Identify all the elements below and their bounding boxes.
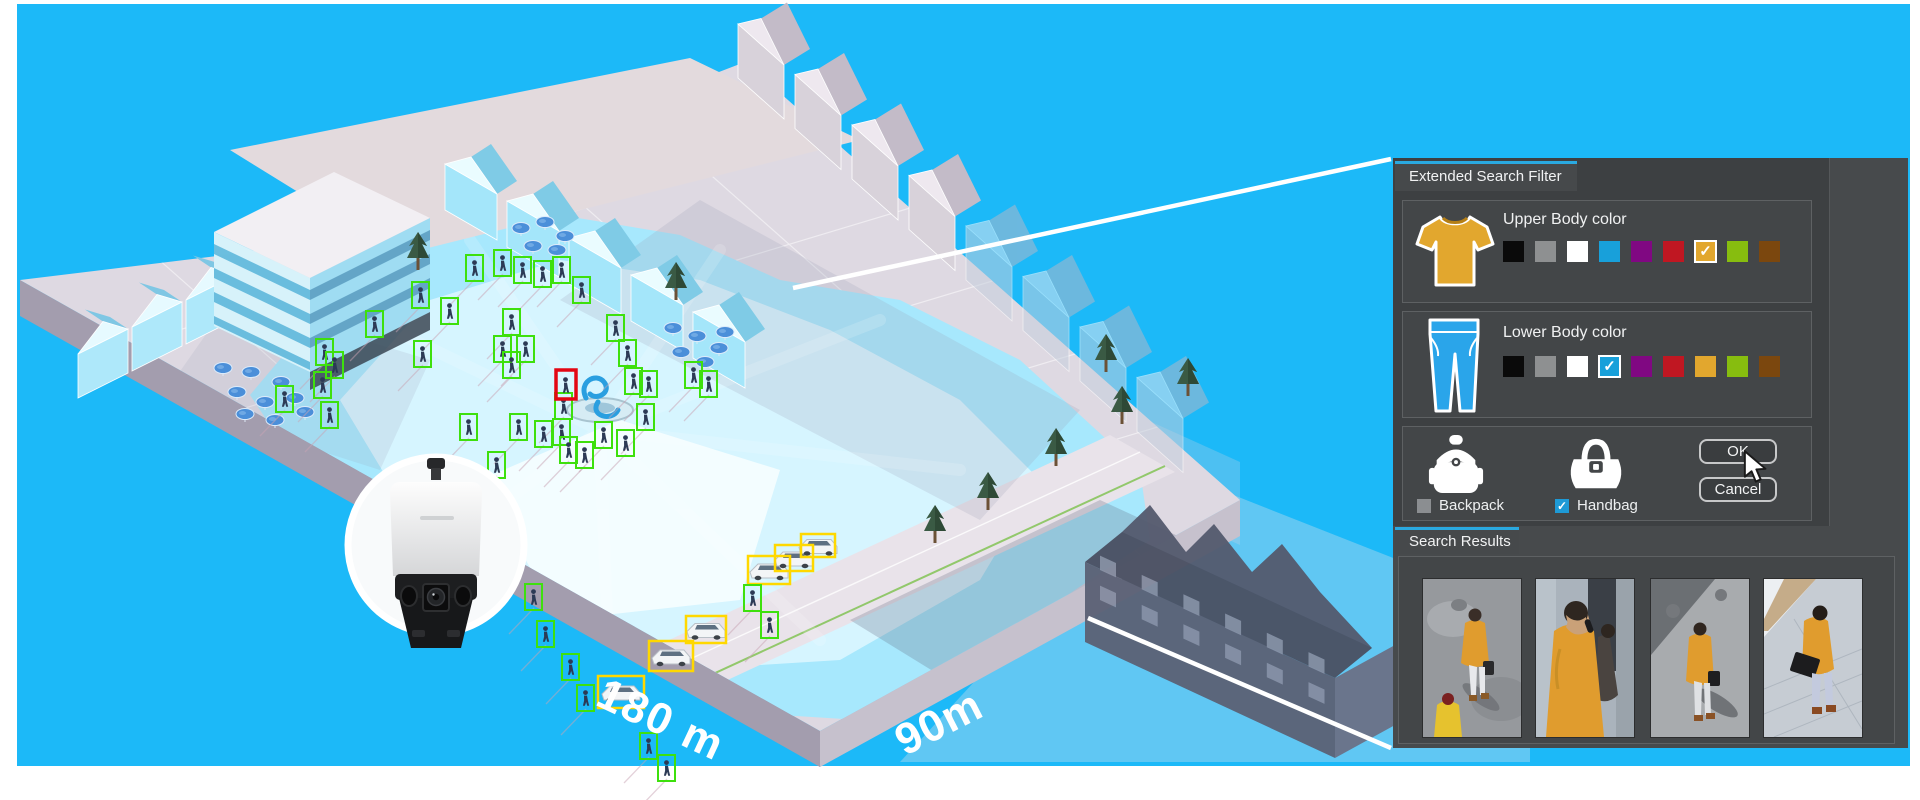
result-thumbnail-1[interactable] bbox=[1423, 579, 1521, 737]
color-swatch[interactable] bbox=[1567, 241, 1588, 262]
lower-body-swatches: ✓ bbox=[1503, 356, 1780, 377]
color-swatch[interactable] bbox=[1663, 241, 1684, 262]
color-swatch[interactable] bbox=[1535, 241, 1556, 262]
backpack-option[interactable]: Backpack bbox=[1417, 497, 1504, 514]
result-thumbnail-2[interactable] bbox=[1536, 579, 1634, 737]
jeans-icon bbox=[1423, 318, 1485, 419]
upper-body-swatches: ✓ bbox=[1503, 241, 1780, 262]
tab-search-results[interactable]: Search Results bbox=[1395, 527, 1519, 554]
color-swatch[interactable] bbox=[1759, 241, 1780, 262]
mouse-cursor bbox=[1742, 450, 1772, 484]
color-swatch[interactable] bbox=[1535, 356, 1556, 377]
color-swatch[interactable] bbox=[1631, 241, 1652, 262]
handbag-option[interactable]: Handbag bbox=[1555, 497, 1638, 514]
promo-composite: 180 m 90m Extended Search Filter Upper B… bbox=[0, 0, 1920, 800]
lower-body-title: Lower Body color bbox=[1503, 324, 1627, 342]
color-swatch[interactable] bbox=[1631, 356, 1652, 377]
result-thumbnail-4[interactable] bbox=[1764, 579, 1862, 737]
tab-extended-search-filter[interactable]: Extended Search Filter bbox=[1395, 161, 1577, 191]
upper-body-group: Upper Body color ✓ bbox=[1402, 200, 1812, 303]
color-swatch[interactable] bbox=[1663, 356, 1684, 377]
handbag-checkbox[interactable] bbox=[1555, 499, 1569, 513]
color-swatch[interactable] bbox=[1727, 356, 1748, 377]
backpack-checkbox[interactable] bbox=[1417, 499, 1431, 513]
color-swatch[interactable] bbox=[1567, 356, 1588, 377]
color-swatch[interactable] bbox=[1503, 356, 1524, 377]
color-swatch[interactable]: ✓ bbox=[1695, 241, 1716, 262]
search-results-box bbox=[1398, 556, 1895, 744]
color-swatch[interactable] bbox=[1695, 356, 1716, 377]
result-thumbnail-3[interactable] bbox=[1651, 579, 1749, 737]
backpack-icon bbox=[1427, 433, 1485, 500]
color-swatch[interactable]: ✓ bbox=[1599, 356, 1620, 377]
upper-body-title: Upper Body color bbox=[1503, 211, 1627, 229]
color-swatch[interactable] bbox=[1759, 356, 1780, 377]
check-icon: ✓ bbox=[1695, 241, 1716, 262]
handbag-label: Handbag bbox=[1577, 497, 1638, 514]
search-filter-panel: Extended Search Filter Upper Body color … bbox=[1393, 158, 1908, 748]
check-icon: ✓ bbox=[1599, 356, 1620, 377]
lower-body-group: Lower Body color ✓ bbox=[1402, 311, 1812, 418]
handbag-icon bbox=[1565, 437, 1627, 498]
tab-label: Extended Search Filter bbox=[1409, 168, 1562, 185]
backpack-label: Backpack bbox=[1439, 497, 1504, 514]
tshirt-icon bbox=[1415, 209, 1495, 298]
tab-label: Search Results bbox=[1409, 533, 1511, 550]
color-swatch[interactable] bbox=[1599, 241, 1620, 262]
color-swatch[interactable] bbox=[1503, 241, 1524, 262]
color-swatch[interactable] bbox=[1727, 241, 1748, 262]
